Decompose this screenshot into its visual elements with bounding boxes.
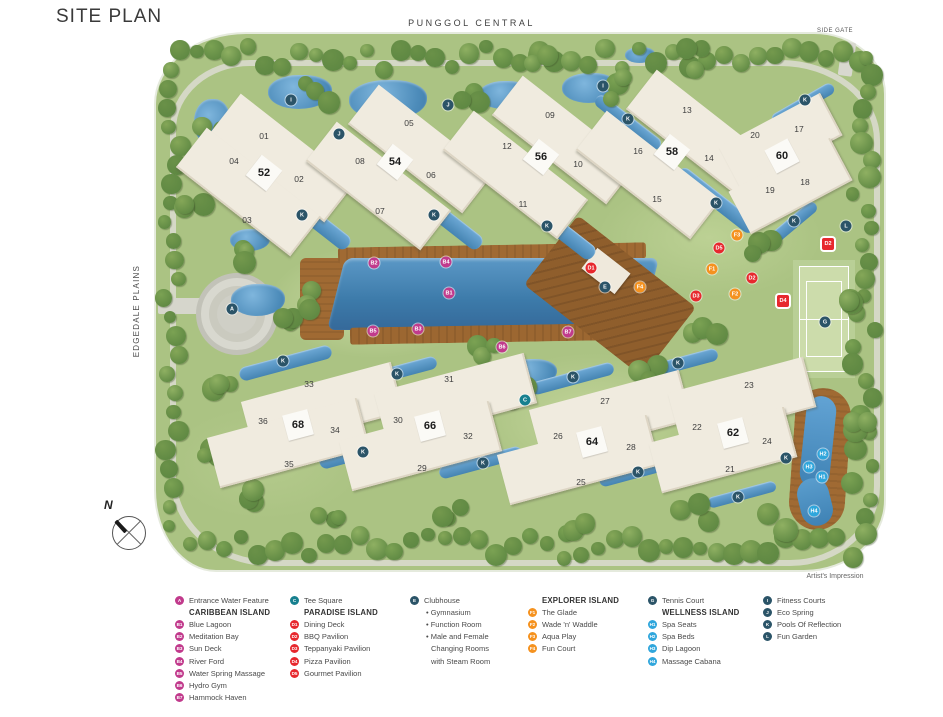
legend-row: B3Sun Deck [175, 643, 270, 655]
map-badge-K: K [781, 453, 792, 464]
building-number-25: 25 [576, 477, 585, 487]
tree [757, 542, 778, 563]
tree [686, 61, 704, 79]
tree [317, 534, 335, 552]
legend-label: Water Spring Massage [189, 669, 265, 678]
building-number-11: 11 [519, 199, 528, 209]
tree [158, 99, 175, 116]
map-badge-D5: D5 [714, 243, 725, 254]
map-badge-B4: B4 [441, 257, 452, 268]
compass: N [96, 498, 166, 562]
tree [846, 187, 859, 200]
map-badge-L: L [841, 221, 852, 232]
tree [360, 44, 373, 57]
legend-badge-K: K [763, 620, 772, 629]
tree [255, 56, 274, 75]
building-number-03: 03 [242, 215, 251, 225]
tree [853, 99, 873, 119]
building-number-06: 06 [426, 170, 435, 180]
legend-badge-C: C [290, 596, 299, 605]
legend-row: B4River Ford [175, 655, 270, 667]
legend-badge-I: I [763, 596, 772, 605]
tree [445, 60, 459, 74]
map-badge-H4: H4 [809, 506, 820, 517]
tree [693, 542, 706, 555]
building-number-01: 01 [259, 131, 268, 141]
building-number-27: 27 [600, 396, 609, 406]
tree [749, 47, 766, 64]
block-number-62: 62 [727, 427, 739, 439]
map-badge-E: E [600, 282, 611, 293]
legend-row: WELLNESS ISLAND [648, 606, 740, 618]
block-number-52: 52 [258, 167, 270, 179]
map-badge-F2: F2 [730, 289, 741, 300]
legend-label: Dining Deck [304, 620, 344, 629]
legend-label: Spa Beds [662, 632, 695, 641]
legend-row: B5Water Spring Massage [175, 667, 270, 679]
legend-row: PARADISE ISLAND [290, 606, 378, 618]
legend-label: Hammock Haven [189, 693, 247, 702]
map-badge-B7: B7 [563, 327, 574, 338]
legend-label: Dip Lagoon [662, 644, 700, 653]
legend-badge-B4: B4 [175, 657, 184, 666]
legend-row: B1Blue Lagoon [175, 618, 270, 630]
tree [459, 43, 480, 64]
legend-row: H2Spa Beds [648, 631, 740, 643]
tree [579, 56, 597, 74]
tree [715, 46, 733, 64]
map-badge-I: I [286, 95, 297, 106]
tree [659, 539, 674, 554]
legend-row: F4Fun Court [528, 643, 619, 655]
map-badge-K: K [623, 114, 634, 125]
legend-row: H3Dip Lagoon [648, 643, 740, 655]
legend-label: The Glade [542, 608, 577, 617]
building-number-13: 13 [682, 105, 691, 115]
building-number-07: 07 [375, 206, 384, 216]
map-badge-K: K [392, 369, 403, 380]
tree [301, 548, 317, 564]
tree [160, 460, 177, 477]
artist-impression-note: Artist's Impression [780, 573, 890, 580]
legend-label: Blue Lagoon [189, 620, 231, 629]
legend-row: B6Hydro Gym [175, 679, 270, 691]
legend-label: with Steam Room [431, 657, 490, 666]
map-badge-F1: F1 [707, 264, 718, 275]
legend-badge-D2: D2 [290, 632, 299, 641]
map-badge-K: K [278, 356, 289, 367]
tree [403, 532, 418, 547]
block-number-66: 66 [424, 420, 436, 432]
block-number-60: 60 [776, 150, 788, 162]
tree [158, 215, 171, 228]
building-number-30: 30 [393, 415, 402, 425]
tree [410, 45, 426, 61]
legend-label: Spa Seats [662, 620, 697, 629]
block-number-54: 54 [389, 156, 401, 168]
legend-column: CTee SquarePARADISE ISLANDD1Dining DeckD… [290, 594, 378, 679]
map-badge-I: I [598, 81, 609, 92]
legend-badge-H1: H1 [648, 620, 657, 629]
tree [175, 195, 194, 214]
legend-row: F3Aqua Play [528, 631, 619, 643]
tree [575, 513, 595, 533]
map-badge-K: K [789, 216, 800, 227]
legend-row: H1Spa Seats [648, 618, 740, 630]
building-number-05: 05 [404, 118, 413, 128]
tree [839, 291, 859, 311]
map-badge-K: K [568, 372, 579, 383]
legend-label: CARIBBEAN ISLAND [189, 608, 270, 617]
legend-badge-B1: B1 [175, 620, 184, 629]
building-number-29: 29 [417, 463, 426, 473]
legend-label: Hydro Gym [189, 681, 227, 690]
building-number-09: 09 [545, 110, 554, 120]
legend-label: Tee Square [304, 596, 342, 605]
legend-badge-A: A [175, 596, 184, 605]
block-number-56: 56 [535, 151, 547, 163]
legend-row: H4Massage Cabana [648, 655, 740, 667]
legend-badge-F4: F4 [528, 644, 537, 653]
tree [375, 61, 393, 79]
legend-label: Massage Cabana [662, 657, 721, 666]
legend-label: Gourmet Pavilion [304, 669, 362, 678]
map-badge-B5: B5 [368, 326, 379, 337]
map-badge-K: K [633, 467, 644, 478]
building-number-21: 21 [725, 464, 734, 474]
legend-row: CTee Square [290, 594, 378, 606]
tree [164, 478, 184, 498]
legend-row: F2Wade 'n' Waddle [528, 618, 619, 630]
legend-badge-D3: D3 [290, 644, 299, 653]
legend-label: PARADISE ISLAND [304, 608, 378, 617]
legend-label: Entrance Water Feature [189, 596, 269, 605]
legend-label: WELLNESS ISLAND [662, 608, 740, 617]
map-badge-F3: F3 [732, 230, 743, 241]
map-badge-K: K [733, 492, 744, 503]
legend-row: EClubhouse [410, 594, 490, 606]
legend-badge-B6: B6 [175, 681, 184, 690]
tree [688, 493, 710, 515]
legend-column: AEntrance Water FeatureCARIBBEAN ISLANDB… [175, 594, 270, 704]
map-badge-D1: D1 [586, 263, 597, 274]
map-badge-A: A [227, 304, 238, 315]
tree [861, 64, 882, 85]
tree [855, 523, 878, 546]
legend-label: Male and Female [426, 632, 489, 641]
legend-row: AEntrance Water Feature [175, 594, 270, 606]
legend-row: D1Dining Deck [290, 618, 378, 630]
legend-label: Tennis Court [662, 596, 704, 605]
tree [843, 547, 864, 568]
legend-row: F1The Glade [528, 606, 619, 618]
tree [673, 537, 694, 558]
legend-badge-F2: F2 [528, 620, 537, 629]
tree [166, 233, 181, 248]
map-badge-K: K [673, 358, 684, 369]
legend-row: IFitness Courts [763, 594, 841, 606]
tree [234, 530, 248, 544]
legend-label: EXPLORER ISLAND [542, 596, 619, 605]
legend-badge-B5: B5 [175, 669, 184, 678]
legend-row: CARIBBEAN ISLAND [175, 606, 270, 618]
legend-row: LFun Garden [763, 631, 841, 643]
legend-label: Pizza Pavilion [304, 657, 351, 666]
tree [860, 84, 876, 100]
legend-badge-B3: B3 [175, 644, 184, 653]
map-badge-D3: D3 [691, 291, 702, 302]
tree [165, 251, 183, 269]
tree [766, 47, 784, 65]
tree [863, 388, 882, 407]
tree [421, 528, 434, 541]
legend-label: Pools Of Reflection [777, 620, 841, 629]
map-badge-B1: B1 [444, 288, 455, 299]
building-number-26: 26 [553, 431, 562, 441]
legend-row: JEco Spring [763, 606, 841, 618]
building-number-34: 34 [330, 425, 339, 435]
map-badge-K: K [800, 95, 811, 106]
legend-label: Fun Garden [777, 632, 817, 641]
tree [866, 459, 880, 473]
tree [537, 45, 558, 66]
tree [863, 493, 878, 508]
tree [595, 39, 615, 59]
tree [299, 299, 320, 320]
map-badge-C: C [520, 395, 531, 406]
building-number-08: 08 [355, 156, 364, 166]
legend-row: Function Room [410, 618, 490, 630]
tree [614, 69, 631, 86]
map-badge-D2: D2 [747, 273, 758, 284]
legend-label: Gymnasium [426, 608, 471, 617]
legend-badge-G: G [648, 596, 657, 605]
tree [290, 43, 307, 60]
tree [861, 204, 876, 219]
tree [233, 251, 256, 274]
tree [470, 530, 488, 548]
legend-label: Fitness Courts [777, 596, 825, 605]
map-badge-D4: D4 [777, 295, 789, 307]
map-badge-B2: B2 [369, 258, 380, 269]
legend-badge-F3: F3 [528, 632, 537, 641]
tree [864, 221, 879, 236]
tree [391, 40, 412, 61]
tree [161, 174, 181, 194]
tree [170, 346, 188, 364]
legend-badge-H4: H4 [648, 657, 657, 666]
tree [167, 385, 183, 401]
block-number-64: 64 [586, 436, 598, 448]
legend-row: D4Pizza Pavilion [290, 655, 378, 667]
site-plan-page: SITE PLAN PUNGGOL CENTRAL EDGEDALE PLAIN… [0, 0, 943, 717]
map-badge-J: J [443, 100, 454, 111]
tree [183, 537, 197, 551]
map-badge-K: K [297, 210, 308, 221]
legend-label: BBQ Pavilion [304, 632, 348, 641]
legend-row: D2BBQ Pavilion [290, 631, 378, 643]
legend-badge-F1: F1 [528, 608, 537, 617]
legend-label: Sun Deck [189, 644, 222, 653]
tree [166, 405, 180, 419]
tree [855, 269, 875, 289]
legend-badge-H3: H3 [648, 644, 657, 653]
tree [591, 542, 604, 555]
legend-column: EXPLORER ISLANDF1The GladeF2Wade 'n' Wad… [528, 594, 619, 655]
tree [170, 40, 190, 60]
building-number-17: 17 [794, 124, 803, 134]
building-number-20: 20 [750, 130, 759, 140]
legend-badge-L: L [763, 632, 772, 641]
tree [155, 440, 176, 461]
building-number-33: 33 [304, 379, 313, 389]
tree [827, 528, 844, 545]
tree [818, 50, 835, 67]
legend-label: Changing Rooms [431, 644, 489, 653]
legend-row: Male and Female [410, 631, 490, 643]
legend-row: D3Teppanyaki Pavilion [290, 643, 378, 655]
legend-column: IFitness CourtsJEco SpringKPools Of Refl… [763, 594, 841, 643]
block-number-68: 68 [292, 419, 304, 431]
building-number-15: 15 [652, 194, 661, 204]
map-badge-B6: B6 [497, 342, 508, 353]
map-badge-H1: H1 [817, 472, 828, 483]
legend-label: Meditation Bay [189, 632, 239, 641]
tree [159, 80, 178, 99]
building-number-28: 28 [626, 442, 635, 452]
building-number-04: 04 [229, 156, 238, 166]
legend-badge-H2: H2 [648, 632, 657, 641]
legend-label: River Ford [189, 657, 224, 666]
building-number-18: 18 [800, 177, 809, 187]
tree [242, 479, 264, 501]
building-number-22: 22 [692, 422, 701, 432]
map-badge-K: K [478, 458, 489, 469]
map-badge-K: K [542, 221, 553, 232]
building-number-24: 24 [762, 436, 771, 446]
tree [322, 49, 344, 71]
tree [343, 56, 356, 69]
tree [557, 551, 572, 566]
building-number-02: 02 [294, 174, 303, 184]
legend-badge-B7: B7 [175, 693, 184, 702]
tree [706, 323, 728, 345]
tree [159, 366, 174, 381]
legend-row: Changing Rooms [410, 643, 490, 655]
legend-label: Clubhouse [424, 596, 460, 605]
legend-label: Teppanyaki Pavilion [304, 644, 370, 653]
map-badge-B3: B3 [413, 324, 424, 335]
building-number-36: 36 [258, 416, 267, 426]
tree [638, 539, 660, 561]
legend-column: EClubhouseGymnasiumFunction RoomMale and… [410, 594, 490, 667]
legend-row: D5Gourmet Pavilion [290, 667, 378, 679]
tree [163, 62, 178, 77]
building-number-12: 12 [502, 141, 511, 151]
tree [425, 48, 444, 67]
map-badge-D2: D2 [822, 238, 834, 250]
tree [168, 421, 188, 441]
compass-north-label: N [104, 498, 113, 512]
legend: AEntrance Water FeatureCARIBBEAN ISLANDB… [0, 594, 943, 714]
legend-label: Aqua Play [542, 632, 576, 641]
building-number-23: 23 [744, 380, 753, 390]
legend-row: B2Meditation Bay [175, 631, 270, 643]
tree [676, 38, 697, 59]
legend-label: Wade 'n' Waddle [542, 620, 598, 629]
legend-row: Gymnasium [410, 606, 490, 618]
tree [351, 526, 370, 545]
tree [221, 46, 241, 66]
legend-row: EXPLORER ISLAND [528, 594, 619, 606]
tree [155, 289, 173, 307]
legend-row: KPools Of Reflection [763, 618, 841, 630]
tree [603, 91, 619, 107]
map-badge-K: K [711, 198, 722, 209]
map-badge-J: J [334, 129, 345, 140]
tree [858, 412, 877, 431]
tree [468, 91, 490, 113]
map-badge-K: K [358, 447, 369, 458]
tree [774, 518, 797, 541]
tree [479, 40, 492, 53]
tree [240, 38, 257, 55]
tree [493, 48, 513, 68]
legend-badge-D1: D1 [290, 620, 299, 629]
building-number-35: 35 [284, 459, 293, 469]
tree [841, 472, 863, 494]
building-number-19: 19 [765, 185, 774, 195]
legend-label: Eco Spring [777, 608, 814, 617]
building-number-10: 10 [573, 159, 582, 169]
legend-badge-D5: D5 [290, 669, 299, 678]
map-badge-K: K [429, 210, 440, 221]
map-badge-G: G [820, 317, 831, 328]
legend-badge-B2: B2 [175, 632, 184, 641]
tree [842, 353, 864, 375]
map-badge-H3: H3 [804, 462, 815, 473]
legend-badge-D4: D4 [290, 657, 299, 666]
building-number-32: 32 [463, 431, 472, 441]
tree [859, 51, 873, 65]
block-number-58: 58 [666, 146, 678, 158]
legend-row: B7Hammock Haven [175, 692, 270, 704]
legend-row: with Steam Room [410, 655, 490, 667]
tree [540, 536, 555, 551]
tree [190, 45, 203, 58]
building-number-16: 16 [633, 146, 642, 156]
tree [318, 91, 340, 113]
map-badge-F4: F4 [635, 282, 646, 293]
legend-column: GTennis CourtWELLNESS ISLANDH1Spa SeatsH… [648, 594, 740, 667]
tree [438, 531, 451, 544]
legend-badge-E: E [410, 596, 419, 605]
legend-badge-J: J [763, 608, 772, 617]
legend-row: GTennis Court [648, 594, 740, 606]
tree [166, 326, 186, 346]
legend-label: Fun Court [542, 644, 575, 653]
tree [273, 58, 291, 76]
tree [453, 91, 470, 108]
tree [334, 535, 353, 554]
building-number-31: 31 [444, 374, 453, 384]
legend-label: Function Room [426, 620, 482, 629]
tree [273, 308, 293, 328]
tree [867, 322, 883, 338]
tree [632, 42, 645, 55]
tree [385, 543, 402, 560]
tree [799, 41, 819, 61]
